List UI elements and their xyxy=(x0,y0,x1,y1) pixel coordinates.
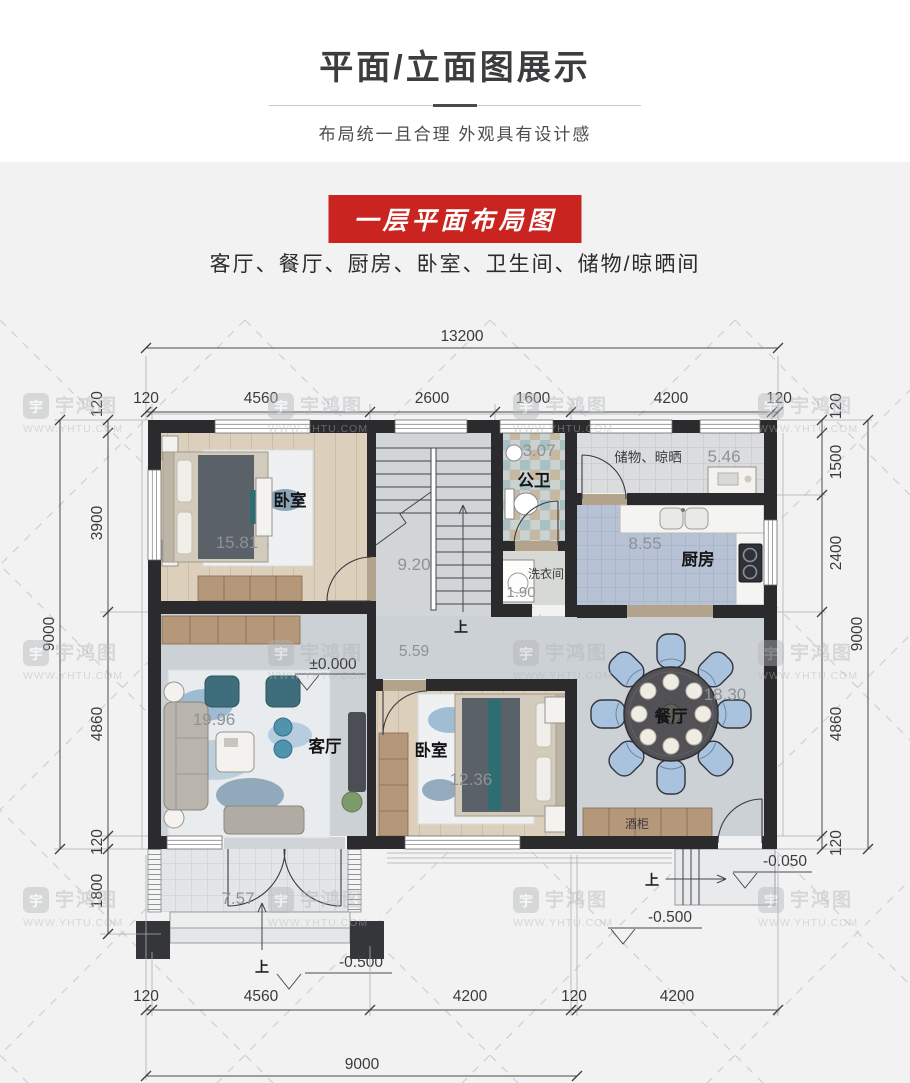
stool xyxy=(274,718,292,736)
bath-area: 3.07 xyxy=(522,441,555,460)
dim-right-3: 4860 xyxy=(828,706,845,741)
living-area: 19.96 xyxy=(193,710,236,729)
bedroom2-label: 卧室 xyxy=(415,740,448,760)
storage-furniture xyxy=(708,467,756,495)
dim-bottom-overall: 9000 xyxy=(345,1056,380,1073)
floor-plan: 宇 宇鸿图 WWW.YHTU.COM xyxy=(0,300,910,1083)
porch-area: 7.57 xyxy=(221,889,254,908)
dim-top-overall: 13200 xyxy=(440,328,483,345)
level-ground: -0.500 xyxy=(339,954,383,971)
tv-console-icon xyxy=(348,712,366,792)
dim-top-0: 120 xyxy=(133,390,159,407)
kitchen-label: 厨房 xyxy=(682,549,715,569)
bedroom2-area: 12.36 xyxy=(450,770,493,789)
bedroom1-label: 卧室 xyxy=(274,490,307,510)
threshold-porch-door xyxy=(224,837,345,849)
dining-area: 18.30 xyxy=(704,685,747,704)
bedroom1-area: 15.81 xyxy=(216,533,259,552)
dim-right-2: 2400 xyxy=(828,535,845,570)
window-icon xyxy=(167,836,222,849)
dim-bottom-3: 120 xyxy=(561,988,587,1005)
dim-bottom-4: 4200 xyxy=(660,988,695,1005)
dim-bottom-1: 4560 xyxy=(244,988,279,1005)
dim-right-4: 120 xyxy=(828,830,845,856)
stair-stringer xyxy=(431,448,436,610)
hall-area: 5.59 xyxy=(399,643,429,660)
room-list: 客厅、餐厅、厨房、卧室、卫生间、储物/晾晒间 xyxy=(0,248,910,278)
armchair-icon xyxy=(205,676,239,707)
dim-bottom-2: 4200 xyxy=(453,988,488,1005)
storage-area: 5.46 xyxy=(707,447,740,466)
bath-label: 公卫 xyxy=(518,471,551,490)
page-title: 平面/立面图展示 xyxy=(0,40,910,89)
dim-left-3: 120 xyxy=(89,829,106,855)
laundry-area: 1.90 xyxy=(506,584,535,601)
plant-icon xyxy=(342,792,362,812)
nightstand xyxy=(545,806,567,832)
dim-right-1: 1500 xyxy=(828,444,845,479)
dim-left-1: 3900 xyxy=(89,505,106,540)
threshold-bedroom2 xyxy=(383,680,426,691)
wardrobe-icon xyxy=(379,733,408,836)
storage-label: 储物、晾晒 xyxy=(614,450,682,465)
threshold-kitchen-dining xyxy=(627,605,713,617)
cabinet-row xyxy=(162,616,300,644)
side-table xyxy=(164,808,184,828)
toilet-icon xyxy=(505,489,514,519)
nightstand xyxy=(545,697,567,723)
stairs-area: 9.20 xyxy=(397,555,430,574)
living-label: 客厅 xyxy=(308,736,343,756)
kitchen-area: 8.55 xyxy=(628,534,661,553)
stove-icon xyxy=(739,544,762,582)
bench xyxy=(224,806,304,834)
page-subtitle: 布局统一且合理 外观具有设计感 xyxy=(0,120,910,145)
window-icon xyxy=(148,470,161,560)
level-entry: -0.050 xyxy=(763,853,807,870)
dim-bottom-0: 120 xyxy=(133,988,159,1005)
window-icon xyxy=(395,420,467,433)
page: 平面/立面图展示 布局统一且合理 外观具有设计感 一层平面布局图 客厅、餐厅、厨… xyxy=(0,0,910,1083)
dining-label: 餐厅 xyxy=(655,706,689,726)
threshold-bath xyxy=(515,541,558,551)
porch-pillar xyxy=(136,921,170,959)
side-table xyxy=(164,682,184,702)
wine-cabinet-label: 酒柜 xyxy=(625,817,649,831)
sink-icon xyxy=(506,445,522,461)
title-divider xyxy=(269,105,641,106)
porch-step xyxy=(170,928,350,943)
porch-rail xyxy=(148,849,161,912)
dim-top-4: 4200 xyxy=(654,390,689,407)
up-label: 上 xyxy=(454,619,468,635)
section-banner: 一层平面布局图 xyxy=(328,195,581,243)
dim-top-2: 2600 xyxy=(415,390,450,407)
window-icon xyxy=(764,520,777,585)
bench xyxy=(256,478,272,536)
window-icon xyxy=(700,420,760,433)
up-label: 上 xyxy=(645,872,659,888)
threshold-storage xyxy=(582,494,627,505)
header: 平面/立面图展示 布局统一且合理 外观具有设计感 xyxy=(0,0,910,145)
level-ground: -0.500 xyxy=(648,909,692,926)
wardrobe-icon xyxy=(198,576,302,601)
dim-left-2: 4860 xyxy=(89,706,106,741)
window-icon xyxy=(405,836,520,849)
up-label: 上 xyxy=(255,959,269,975)
stool xyxy=(274,740,292,758)
threshold-bedroom1 xyxy=(367,557,376,601)
laundry-label: 洗衣间 xyxy=(528,566,564,581)
